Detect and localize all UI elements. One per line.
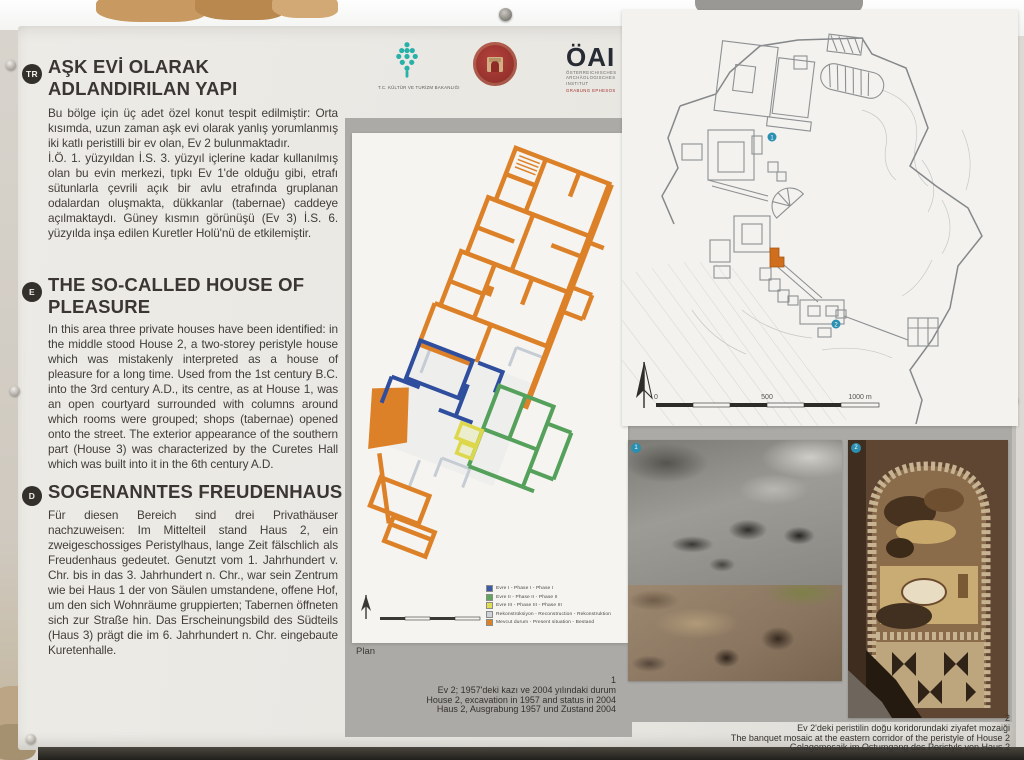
legend-label-phase2: Evre II - Phase II - Phase II [496,595,558,600]
section-title-en: THE SO-CALLED HOUSE OF PLEASURE [48,274,348,318]
legend-label-phase1: Evre I - Phase I - Phase I [496,586,553,591]
legend-label-phase3: Evre III - Phase III - Phase III [496,603,562,608]
map-buildings [682,34,938,346]
legend-chip-reconstruction [486,611,493,618]
photo-1957-bw [628,440,842,585]
photo-1-marker: 1 [631,443,641,453]
site-map-drawing: 1 2 0 500 1000 m [622,10,1018,426]
legend-row-phase1: Evre I - Phase I - Phase I [486,585,611,592]
language-badge-en: E [22,282,42,302]
section-body-de: Für diesen Bereich sind drei Privathäuse… [48,508,338,658]
stone-top-left-3 [272,0,338,18]
plan-caption: Plan [356,646,375,657]
photo-house2-excavation: 1 [628,440,842,681]
map-location-marker-1: 1 [768,133,777,142]
section-title-de: SOGENANNTES FREUDENHAUS [48,481,368,503]
legend-label-present: Mevcut durum - Present situation - Besta… [496,620,594,625]
map-scale-label-500: 500 [761,394,773,401]
map-location-marker-2: 2 [832,320,841,329]
photo-of-information-panel: TR AŞK EVİ OLARAK ADLANDIRILAN YAPI Bu b… [0,0,1024,760]
map-site-boundary [662,38,982,424]
map-highlighted-house [770,248,784,267]
museum-logo-icon [473,42,517,86]
map-north-arrow-icon [636,362,652,408]
plan-north-arrow-icon [361,595,371,619]
photo-banquet-mosaic: 2 [848,440,1008,718]
site-map-card: 1 2 0 500 1000 m [622,10,1018,426]
ministry-tree-logo-icon [392,40,422,80]
legend-chip-present [486,619,493,626]
section-title-tr: AŞK EVİ OLARAK ADLANDIRILAN YAPI [48,56,348,100]
photo-2-marker: 2 [851,443,861,453]
legend-label-reconstruction: Rekonstrüksiyon - Reconstruction - Rekon… [496,612,611,617]
caption-1-de: Haus 2, Ausgrabung 1957 und Zustand 2004 [400,705,616,715]
language-badge-de: D [22,486,42,506]
plan-scale-bar [380,617,480,620]
screw-top-icon [499,8,512,21]
legend-chip-phase3 [486,602,493,609]
legend-row-reconstruction: Rekonstrüksiyon - Reconstruction - Rekon… [486,611,611,618]
plan-legend: Evre I - Phase I - Phase I Evre II - Pha… [486,585,611,626]
caption-photo-2: 2 Ev 2'deki peristilin doğu koridorundak… [730,714,1010,753]
caption-2-de: Gelagemosaik im Ostumgang des Peristyls … [730,743,1010,753]
legend-chip-phase1 [486,585,493,592]
ministry-logo-block: T.C. KÜLTÜR VE TURİZM BAKANLIĞI [378,40,436,90]
legend-row-phase3: Evre III - Phase III - Phase III [486,602,611,609]
legend-row-phase2: Evre II - Phase II - Phase II [486,594,611,601]
ministry-logo-caption: T.C. KÜLTÜR VE TURİZM BAKANLIĞI [378,85,436,90]
photo-2004-color [628,585,842,681]
bolt-left-middle-icon [10,386,20,396]
bolt-left-top-icon [6,60,16,70]
museum-building-glyph [482,51,508,77]
floor-plan-card: Evre I - Phase I - Phase I Evre II - Pha… [352,133,628,643]
map-scale-bar: 0 500 1000 m [654,394,879,407]
map-scale-label-1000: 1000 m [848,394,872,401]
map-hatch-lines [622,262,846,426]
section-body-en: In this area three private houses have b… [48,322,338,472]
plan-walls-present [352,141,628,579]
caption-photo-1: 1 Ev 2; 1957'deki kazı ve 2004 yılındaki… [400,676,616,715]
plan-stairs [515,156,540,175]
mosaic-drawing [848,440,1008,718]
floor-plan-drawing [352,133,628,643]
language-badge-tr: TR [22,64,42,84]
stone-top-left [96,0,206,22]
bolt-bottom-left-icon [26,734,36,744]
section-body-tr: Bu bölge için üç adet özel konut tespit … [48,106,338,241]
map-scale-label-0: 0 [654,394,658,401]
legend-row-present: Mevcut durum - Present situation - Besta… [486,619,611,626]
legend-chip-phase2 [486,594,493,601]
